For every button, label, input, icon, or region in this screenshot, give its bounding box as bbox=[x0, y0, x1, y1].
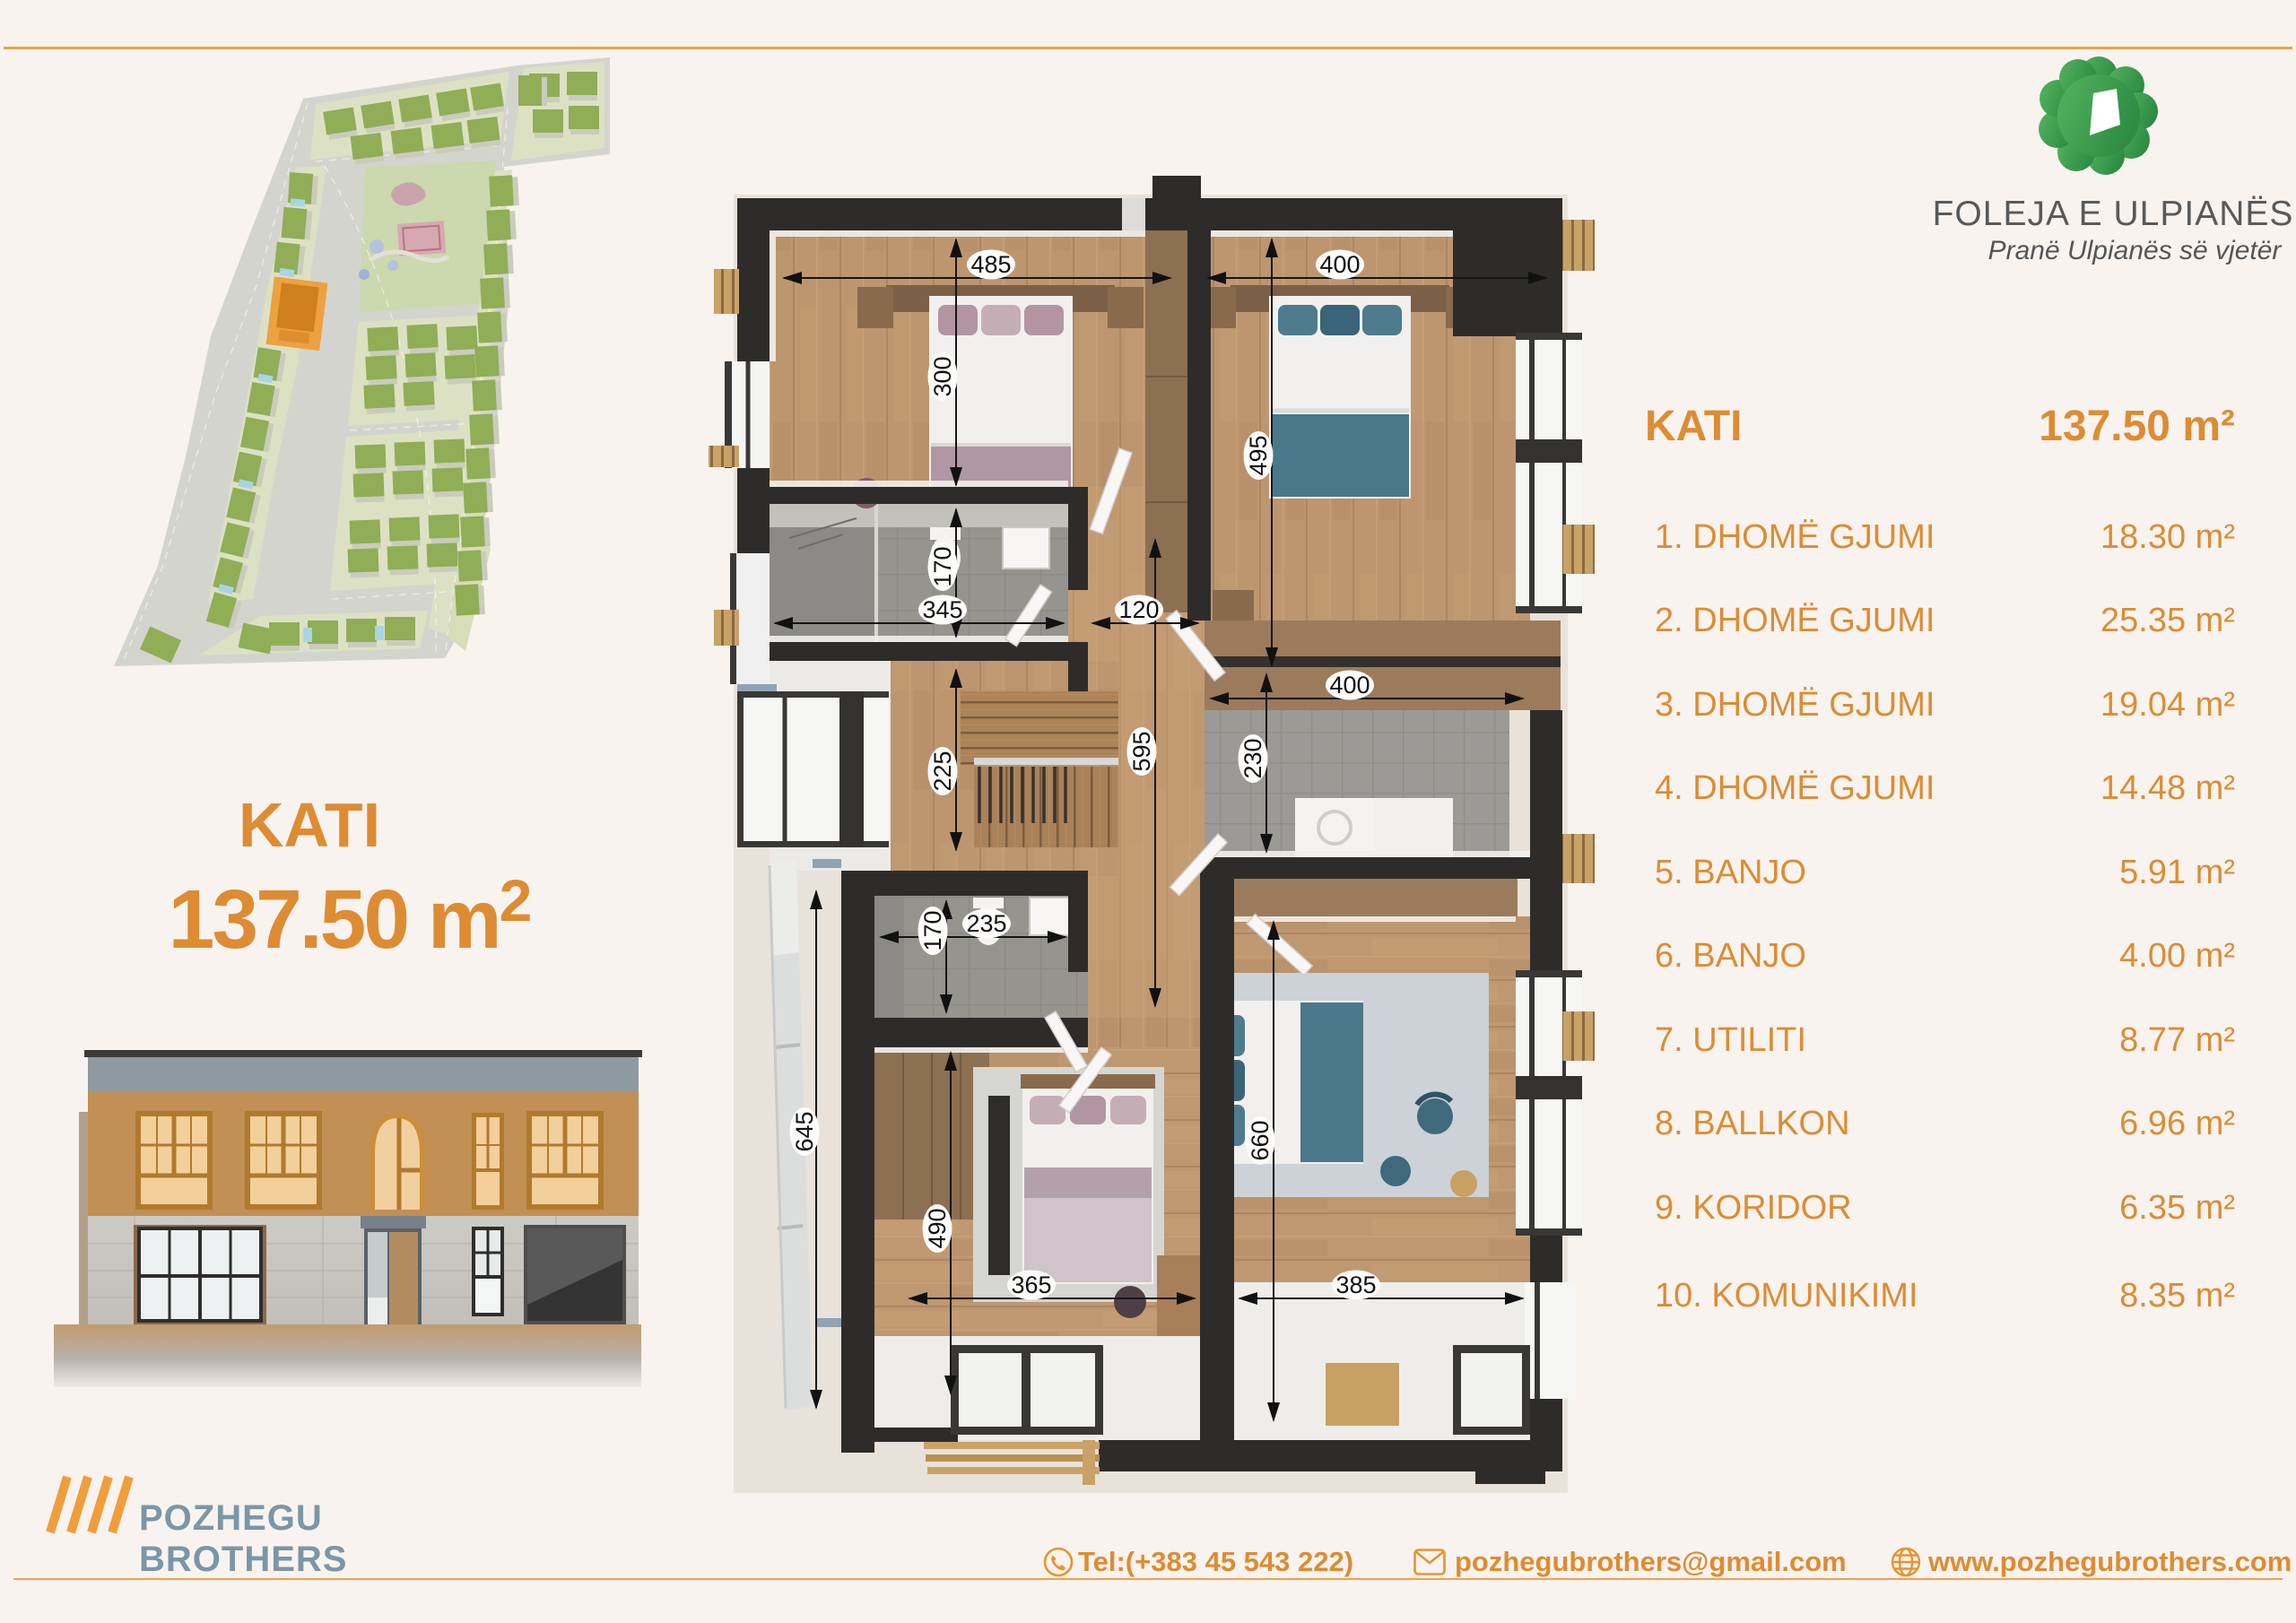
svg-text:170: 170 bbox=[929, 546, 956, 586]
svg-text:400: 400 bbox=[1319, 251, 1360, 278]
svg-text:225: 225 bbox=[929, 751, 956, 791]
svg-text:595: 595 bbox=[1128, 731, 1155, 771]
svg-text:120: 120 bbox=[1118, 596, 1159, 623]
svg-text:495: 495 bbox=[1245, 435, 1272, 475]
svg-text:645: 645 bbox=[791, 1111, 818, 1151]
svg-text:235: 235 bbox=[966, 910, 1006, 937]
svg-text:230: 230 bbox=[1239, 738, 1266, 778]
svg-text:170: 170 bbox=[919, 910, 946, 950]
svg-text:660: 660 bbox=[1247, 1120, 1274, 1160]
svg-text:400: 400 bbox=[1329, 672, 1370, 699]
svg-text:385: 385 bbox=[1335, 1271, 1376, 1298]
svg-text:365: 365 bbox=[1011, 1271, 1051, 1298]
svg-text:BROTHERS: BROTHERS bbox=[139, 1540, 347, 1579]
svg-text:POZHEGU: POZHEGU bbox=[139, 1498, 323, 1538]
svg-text:485: 485 bbox=[970, 251, 1011, 278]
svg-text:490: 490 bbox=[924, 1208, 951, 1248]
svg-text:345: 345 bbox=[922, 596, 962, 623]
svg-text:300: 300 bbox=[929, 356, 956, 396]
